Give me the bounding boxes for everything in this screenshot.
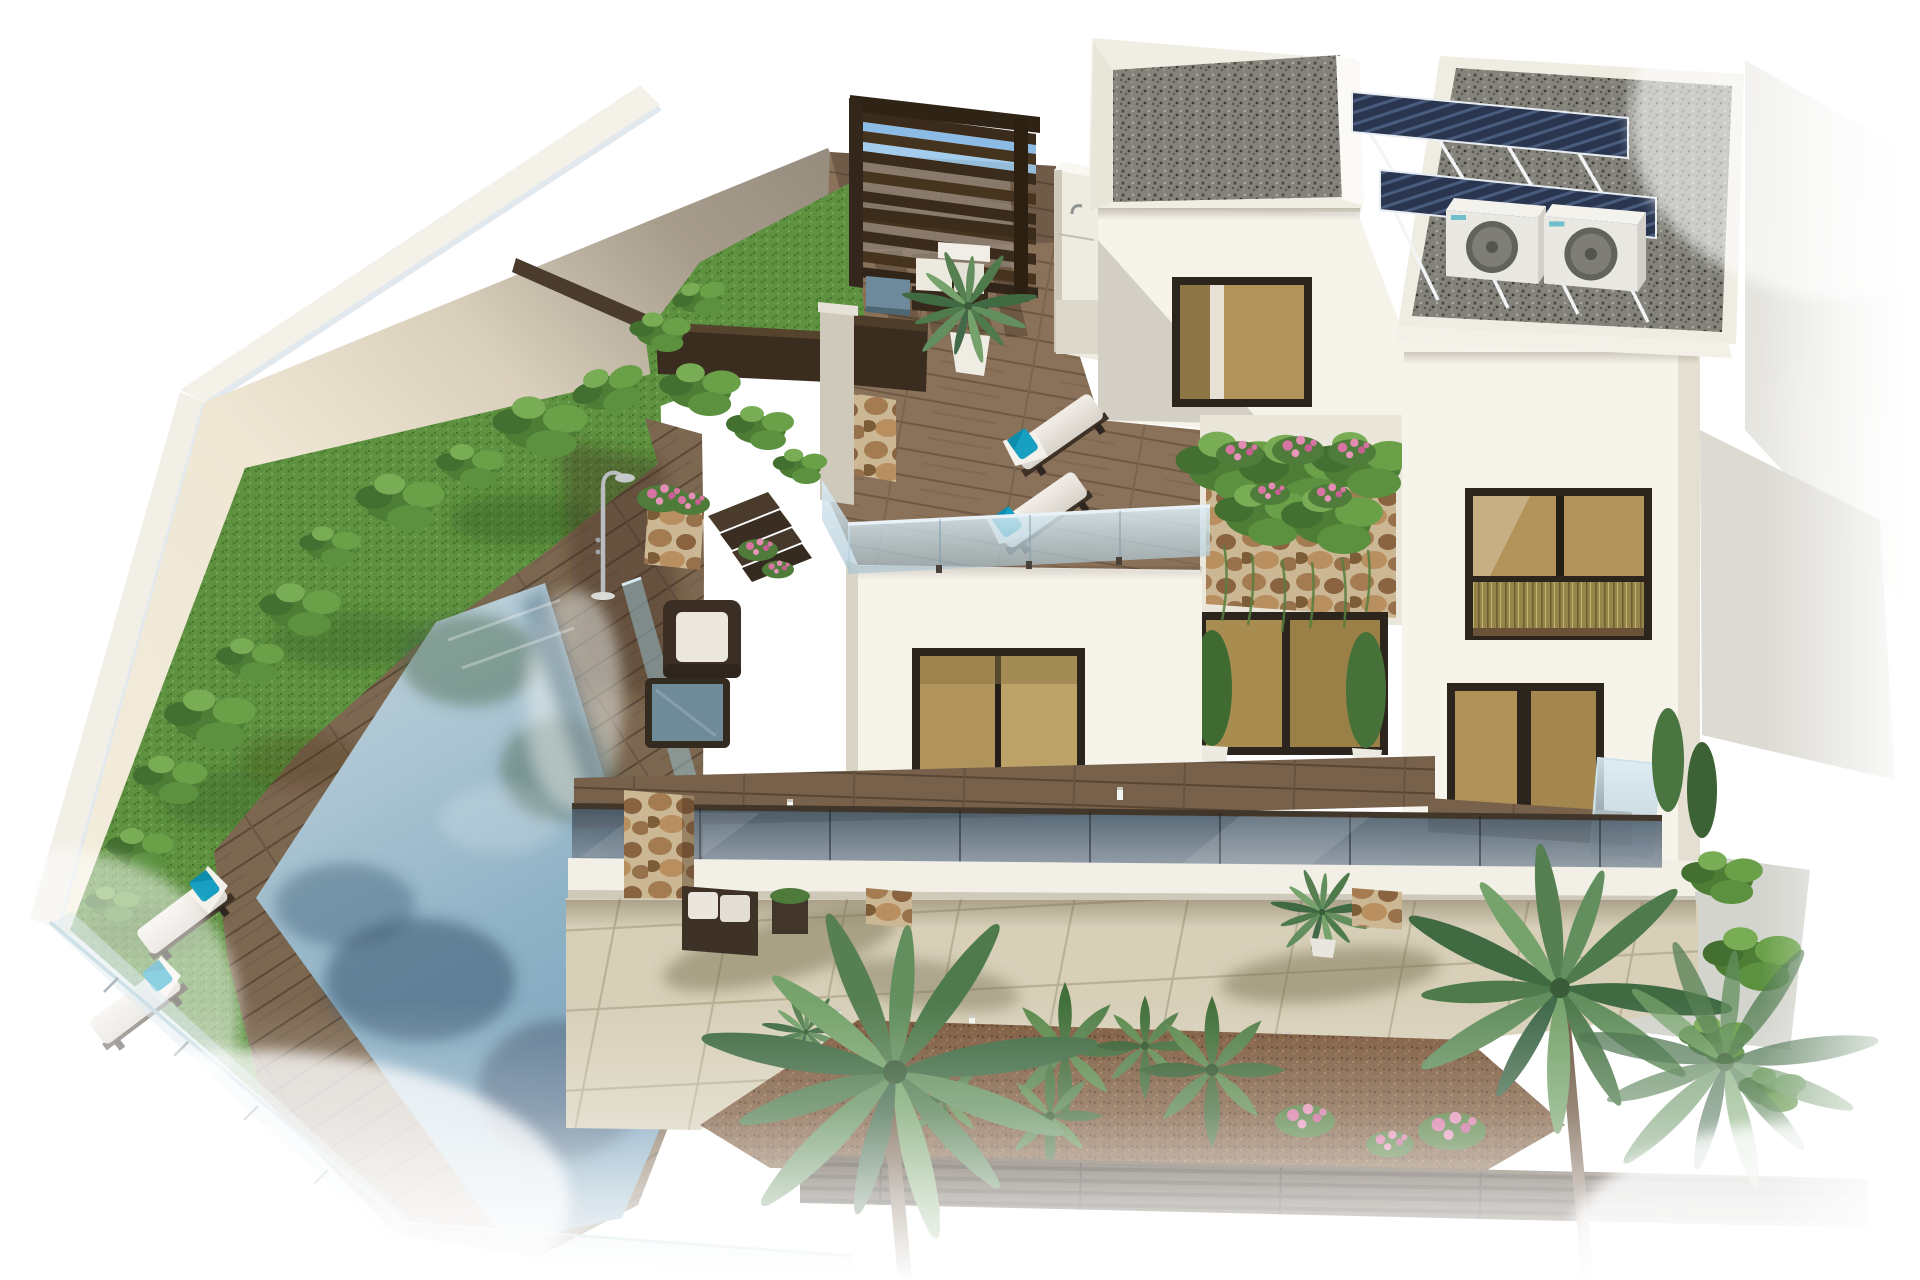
gravel-roof	[1113, 55, 1343, 202]
deck-light	[1117, 787, 1123, 800]
ac-unit	[1446, 198, 1546, 284]
villa-render-canvas: Aerial 3D rendering of a modern white mu…	[0, 0, 1920, 1280]
wall-pillar	[820, 308, 854, 505]
stone-cube	[866, 888, 912, 928]
upper-window	[1465, 488, 1652, 640]
villa-render	[0, 0, 1920, 1280]
stone-planter	[644, 506, 704, 570]
pergola-post	[1014, 118, 1028, 302]
coffee-table-top	[866, 276, 910, 310]
stone-clad-wall	[852, 393, 896, 482]
wicker-sofa	[682, 886, 758, 956]
pergola-post	[849, 98, 863, 288]
window-planter-grasses	[1473, 582, 1644, 632]
ac-unit	[1544, 204, 1646, 292]
flower-wall-bay	[1176, 415, 1413, 772]
wicker-armchair	[663, 600, 741, 678]
window	[1172, 277, 1312, 407]
lower-window	[1447, 683, 1604, 818]
side-table	[645, 678, 730, 748]
stone-cube	[1352, 888, 1402, 930]
